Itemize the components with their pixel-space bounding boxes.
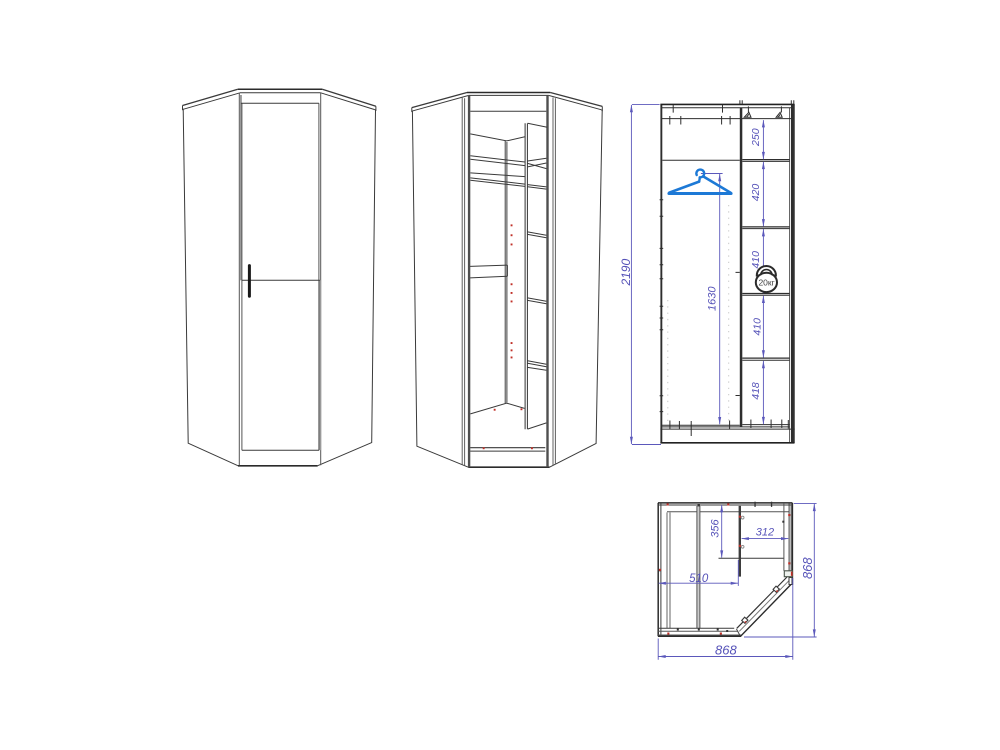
svg-text:410: 410 (750, 251, 762, 269)
svg-text:868: 868 (800, 557, 815, 579)
svg-text:1630: 1630 (706, 286, 718, 311)
svg-text:312: 312 (756, 526, 774, 538)
svg-text:868: 868 (715, 643, 737, 658)
svg-text:418: 418 (750, 382, 762, 400)
svg-text:250: 250 (750, 128, 762, 147)
svg-text:410: 410 (751, 318, 763, 336)
svg-text:356: 356 (709, 519, 721, 538)
svg-text:510: 510 (689, 573, 709, 585)
svg-text:20кг: 20кг (758, 278, 774, 288)
svg-text:2190: 2190 (619, 259, 633, 287)
svg-text:420: 420 (750, 184, 762, 202)
